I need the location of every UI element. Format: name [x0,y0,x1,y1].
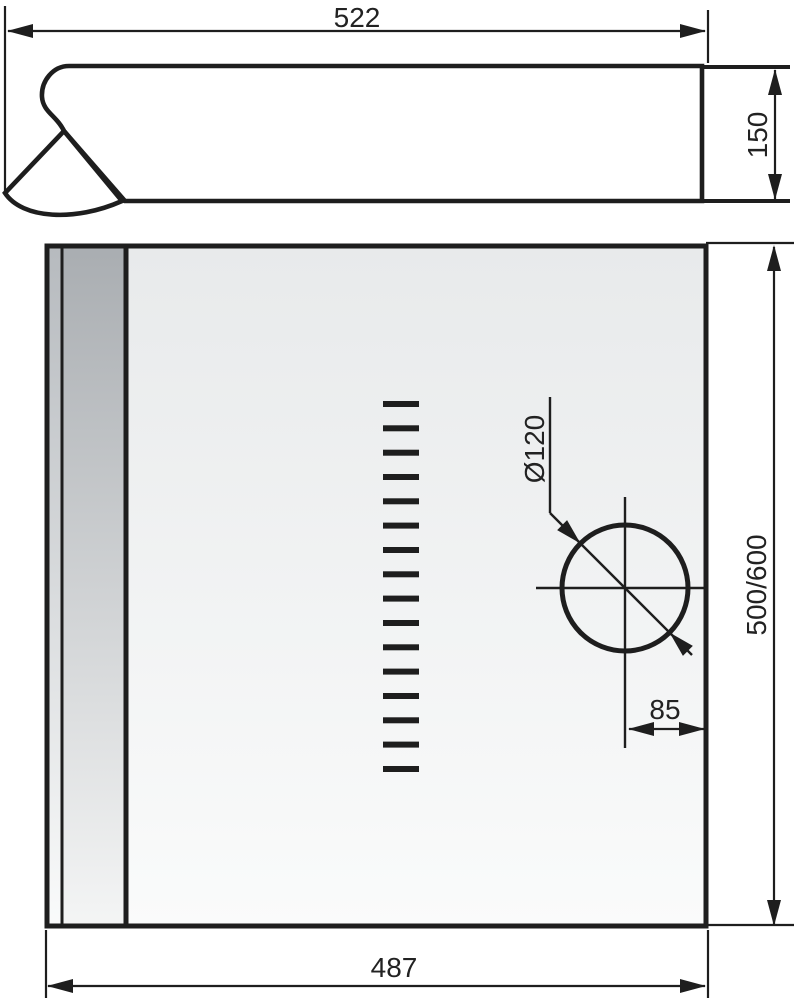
vent-slot [383,523,419,529]
vent-slot [383,474,419,480]
vent-slot [383,766,419,772]
arrowhead-left-icon [7,24,33,38]
vent-slot [383,742,419,748]
vent-slot [383,401,419,407]
vent-slot [383,693,419,699]
arrowhead-left-icon [47,979,73,993]
vent-slot [383,425,419,431]
dimension-label-hole-offset: 85 [649,694,680,725]
hood-visor [5,131,122,215]
arrowhead-down-icon [767,900,781,926]
arrowhead-right-icon [680,979,706,993]
dimension-label-depth: 500/600 [741,534,772,635]
vent-slot [383,717,419,723]
dimension-bottom-width: 487 [46,930,708,998]
hood-body [42,66,702,201]
dimension-label-top-width: 522 [334,2,381,33]
vent-slot [383,596,419,602]
dimension-side-height: 150 [742,69,782,200]
arrowhead-down-icon [768,174,782,200]
vent-slot [383,547,419,553]
arrowhead-up-icon [767,245,781,271]
dimension-depth: 500/600 [706,243,794,926]
technical-drawing-page: 522 150 Ø120 500 [0,0,796,1000]
dimension-label-hole-diameter: Ø120 [519,415,550,484]
vent-slot [383,498,419,504]
dimension-label-side-height: 150 [742,112,773,159]
plan-view: Ø120 [46,244,707,927]
arrowhead-right-icon [680,24,706,38]
vent-slot [383,620,419,626]
arrowhead-up-icon [768,69,782,95]
vent-slot [383,644,419,650]
side-view [5,66,790,215]
dimension-top-width: 522 [5,2,708,192]
vent-slot [383,571,419,577]
vent-slot [383,450,419,456]
technical-drawing: 522 150 Ø120 500 [0,0,796,1000]
panel-surface [126,244,704,927]
side-strip-wide [62,244,126,927]
vent-slot [383,669,419,675]
dimension-label-bottom-width: 487 [371,952,418,983]
